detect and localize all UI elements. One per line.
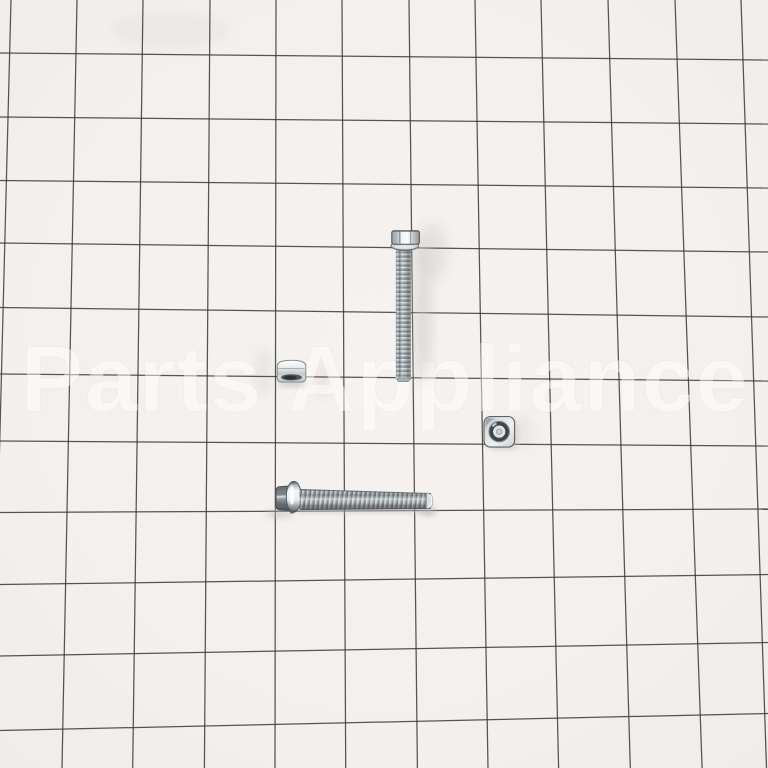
svg-text:Parts Appliance: Parts Appliance bbox=[21, 326, 750, 431]
